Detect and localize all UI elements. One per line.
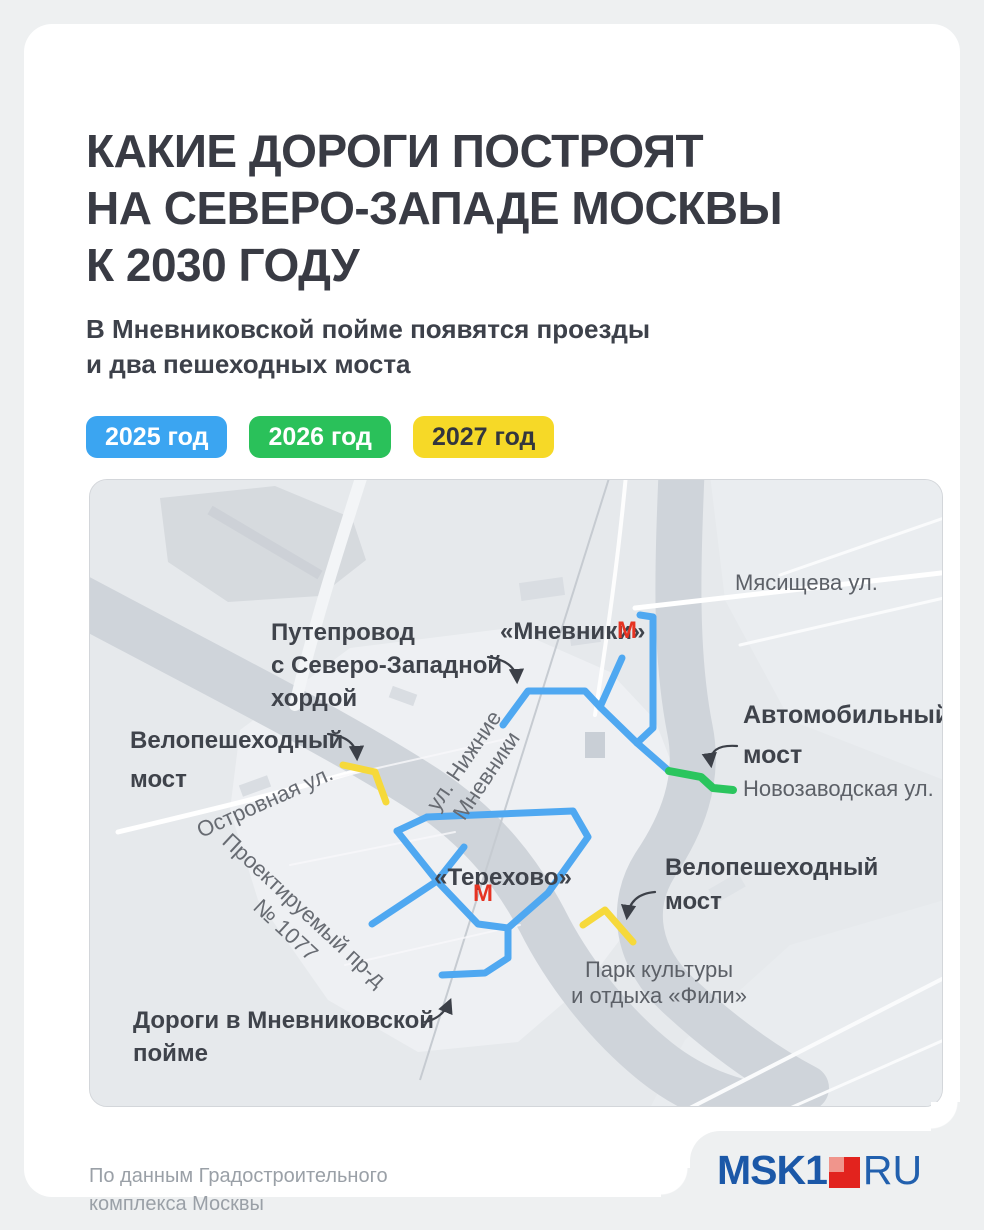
logo-red-square-icon [829, 1157, 860, 1188]
page-title: КАКИЕ ДОРОГИ ПОСТРОЯТ НА СЕВЕРО-ЗАПАДЕ М… [86, 123, 782, 294]
msk1-logo: MSK1 RU [717, 1147, 922, 1194]
source-note: По данным Градостроительного комплекса М… [89, 1162, 388, 1218]
label-park-fili: Парк культуры и отдыха «Фили» [571, 957, 747, 1009]
metro-icon-mnevniki: М [617, 619, 637, 643]
logo-tab: MSK1 RU [690, 1131, 984, 1230]
legend-badge-2025: 2025 год [86, 416, 227, 458]
label-velo-bridge-right: Велопешеходный мост [665, 851, 878, 919]
label-novozavodskaya-street: Новозаводская ул. [743, 776, 934, 802]
legend-badge-2026: 2026 год [249, 416, 390, 458]
map: Мясищева ул. «Мневники» М Путепровод с С… [89, 479, 943, 1107]
logo-text-ru: RU [863, 1147, 922, 1194]
label-terekhovo-station: «Терехово» [420, 864, 586, 892]
legend: 2025 год 2026 год 2027 год [86, 416, 554, 458]
legend-badge-2027: 2027 год [413, 416, 554, 458]
label-myasishcheva-street: Мясищева ул. [735, 570, 878, 596]
page-subtitle: В Мневниковской пойме появятся проезды и… [86, 312, 650, 382]
label-auto-bridge: Автомобильный мост [743, 695, 943, 775]
infographic-page: КАКИЕ ДОРОГИ ПОСТРОЯТ НА СЕВЕРО-ЗАПАДЕ М… [0, 0, 984, 1230]
label-overpass: Путепровод с Северо-Западной хордой [271, 616, 502, 715]
logo-text-msk1: MSK1 [717, 1147, 827, 1194]
metro-icon-terekhovo: М [470, 882, 496, 906]
corner-fillet-bottom [661, 1168, 690, 1197]
label-dorogi-poyma: Дороги в Мневниковской пойме [133, 1004, 434, 1070]
content-card: КАКИЕ ДОРОГИ ПОСТРОЯТ НА СЕВЕРО-ЗАПАДЕ М… [24, 24, 960, 1197]
corner-fillet-top [931, 1102, 960, 1131]
